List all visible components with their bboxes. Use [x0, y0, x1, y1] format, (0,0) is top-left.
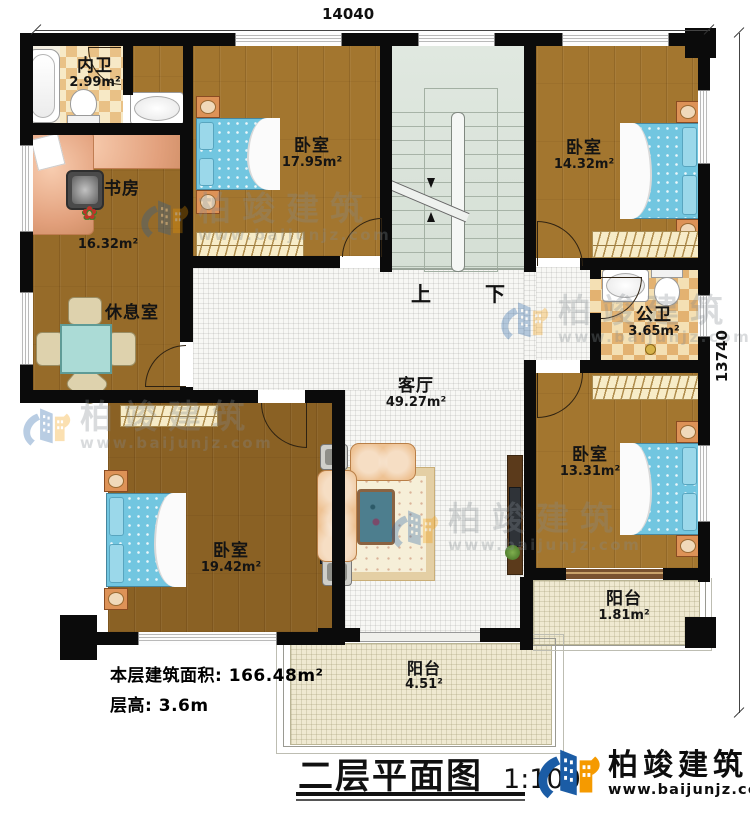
stair-arrow-up: [427, 212, 435, 222]
nightstand: [104, 588, 128, 610]
wall-segment: [20, 33, 235, 46]
wall-segment: [340, 33, 418, 46]
nightstand: [196, 96, 220, 118]
stair-label-up: 上: [411, 278, 431, 307]
dim-right-label: 13740: [713, 330, 731, 382]
nightstand: [676, 535, 700, 557]
wall-segment: [480, 628, 532, 642]
window: [698, 445, 710, 522]
wardrobe-bl: [120, 405, 218, 427]
nightstand: [676, 101, 700, 123]
wall-segment: [180, 135, 193, 342]
sliding-door: [566, 569, 663, 579]
watermark-logo-icon: [20, 401, 72, 453]
wall-segment: [20, 123, 190, 135]
balcony-threshold: [360, 632, 480, 642]
living-floor-upper: [193, 268, 524, 390]
wall-segment: [698, 520, 710, 582]
wardrobe-tl: [196, 232, 304, 258]
wall-segment: [183, 46, 193, 135]
room-label-bedroom-tr: 卧室 14.32m²: [554, 139, 614, 173]
corridor-sink: [130, 92, 184, 125]
coffee-table: [357, 489, 395, 545]
corner-block-bl: [60, 615, 97, 660]
study-plant: ✿: [82, 203, 97, 224]
nightstand: [676, 421, 700, 443]
floor-stats: 本层建筑面积: 166.48m² 层高: 3.6m: [110, 662, 324, 722]
wall-segment: [698, 33, 710, 90]
room-label-balcony-r: 阳台 1.81m²: [598, 590, 649, 624]
living-floor-gap: [524, 270, 536, 360]
wall-segment: [95, 390, 258, 403]
lounge-table: [60, 324, 112, 374]
gongwei-door-knob: [645, 344, 656, 355]
window: [698, 295, 710, 337]
floor-height-line: 层高: 3.6m: [110, 692, 324, 722]
wall-segment: [20, 230, 33, 292]
wall-segment: [590, 267, 601, 279]
brand-logo-icon: [534, 740, 602, 808]
wall-segment: [193, 256, 340, 268]
bed-tl: [196, 118, 280, 190]
brand-block: 柏竣建筑 www.baijunjz.com: [534, 740, 750, 808]
stair-arrow-down: [427, 178, 435, 188]
bed-bl: [106, 493, 186, 587]
nightstand: [104, 470, 128, 492]
room-area-shufang: 16.32m²: [78, 238, 138, 253]
bed-tr: [620, 123, 700, 219]
floor-area-line: 本层建筑面积: 166.48m²: [110, 662, 324, 692]
dim-top-line: [35, 30, 710, 31]
wall-segment: [318, 628, 360, 642]
hall-plant: [505, 545, 520, 560]
lounge-chair-right: [108, 332, 136, 366]
wardrobe-r: [592, 375, 700, 400]
wall-segment: [698, 162, 710, 295]
wall-segment: [663, 568, 698, 580]
title-underline: [296, 792, 525, 796]
gongwei-door-floor: [590, 279, 601, 313]
stair-label-down: 下: [485, 278, 505, 307]
wardrobe-tr: [592, 231, 700, 258]
window: [418, 33, 495, 46]
wall-segment: [698, 335, 710, 445]
corner-block-br: [685, 617, 716, 648]
wall-segment: [332, 403, 345, 632]
stair-handrail: [451, 112, 465, 272]
wall-segment: [493, 33, 562, 46]
room-label-keting: 客厅 49.27m²: [386, 377, 446, 411]
wall-segment: [524, 46, 536, 272]
window: [138, 632, 277, 645]
brand-url: www.baijunjz.com: [608, 782, 750, 798]
window: [698, 90, 710, 164]
bed-r: [620, 443, 700, 535]
brand-name: 柏竣建筑: [608, 750, 750, 782]
room-label-xiuxishi: 休息室: [105, 304, 159, 323]
floor-plan: ✿: [0, 0, 750, 816]
wall-segment: [95, 632, 138, 645]
room-label-balcony-b: 阳台 4.51²: [405, 660, 443, 692]
wall-segment: [524, 360, 536, 373]
wall-segment: [580, 360, 698, 373]
dim-top-label: 14040: [322, 5, 374, 23]
window: [20, 292, 33, 365]
sofa-top: [350, 443, 416, 481]
title-underline-thin: [296, 799, 525, 801]
wall-segment: [590, 313, 601, 360]
dim-right-line: [739, 33, 740, 713]
wall-segment: [305, 390, 345, 403]
room-label-bedroom-bl: 卧室 19.42m²: [201, 542, 261, 576]
wall-segment: [524, 373, 536, 580]
room-label-shufang: 书房: [104, 180, 140, 199]
window: [235, 33, 342, 46]
room-label-neiwei: 内卫 2.99m²: [69, 57, 120, 91]
window: [20, 145, 33, 232]
toilet-gongwei: [654, 277, 680, 306]
room-label-bedroom-r: 卧室 13.31m²: [560, 446, 620, 480]
room-label-gongwei: 公卫 3.65m²: [628, 306, 679, 340]
room-label-bedroom-tl: 卧室 17.95m²: [282, 137, 342, 171]
window: [562, 33, 669, 46]
lounge-chair-top: [68, 297, 102, 325]
wall-segment: [123, 46, 133, 95]
hall-floor: [536, 267, 598, 360]
toilet-neiwei: [70, 89, 97, 118]
nightstand: [196, 190, 220, 214]
tv-living: [509, 487, 521, 547]
